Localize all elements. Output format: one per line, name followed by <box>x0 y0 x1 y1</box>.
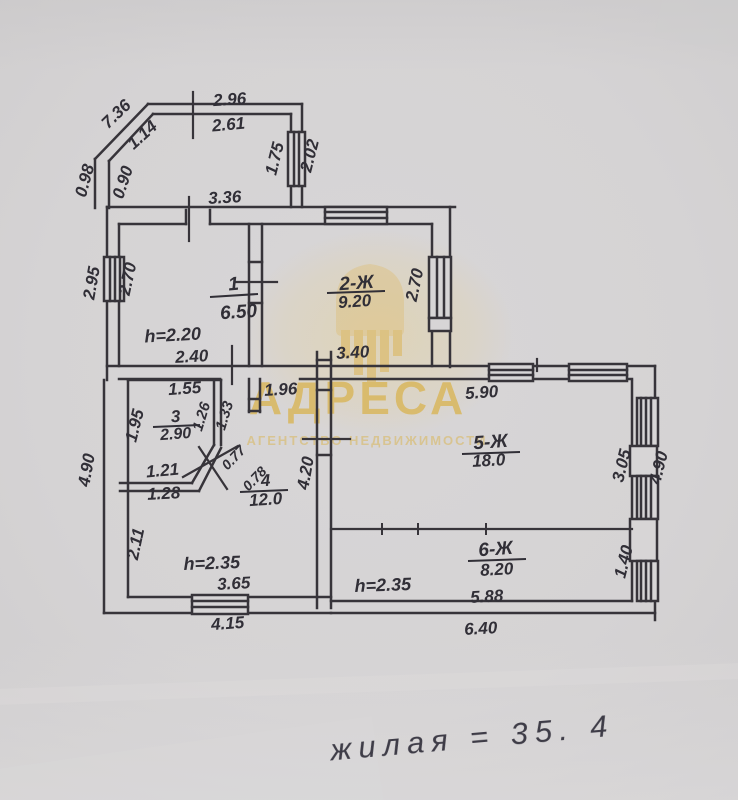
svg-text:5.90: 5.90 <box>464 382 499 403</box>
svg-text:6.40: 6.40 <box>464 618 499 639</box>
svg-text:2.90: 2.90 <box>159 425 192 444</box>
svg-text:9.20: 9.20 <box>337 291 372 312</box>
svg-text:3.40: 3.40 <box>336 342 371 363</box>
svg-text:8.20: 8.20 <box>480 559 515 580</box>
svg-text:1.28: 1.28 <box>147 483 182 504</box>
svg-text:h=2.35: h=2.35 <box>354 574 412 596</box>
svg-text:4: 4 <box>259 471 271 491</box>
svg-text:2.96: 2.96 <box>211 89 247 110</box>
svg-text:6-Ж: 6-Ж <box>478 538 515 561</box>
svg-text:3: 3 <box>170 407 181 427</box>
svg-text:6.50: 6.50 <box>219 301 258 325</box>
svg-text:3.36: 3.36 <box>208 187 243 208</box>
svg-text:4.15: 4.15 <box>209 613 245 634</box>
svg-text:1.96: 1.96 <box>264 379 299 400</box>
svg-text:5.88: 5.88 <box>470 586 505 607</box>
svg-text:3.65: 3.65 <box>217 573 252 594</box>
svg-text:АГЕНТСТВО НЕДВИЖИМОСТИ: АГЕНТСТВО НЕДВИЖИМОСТИ <box>247 433 488 448</box>
svg-text:h=2.35: h=2.35 <box>183 552 241 574</box>
svg-text:1.21: 1.21 <box>145 460 180 482</box>
svg-text:1: 1 <box>227 274 239 296</box>
svg-text:1.55: 1.55 <box>167 378 202 399</box>
svg-text:2.40: 2.40 <box>174 346 210 367</box>
svg-text:2.61: 2.61 <box>210 114 246 136</box>
svg-text:h=2.20: h=2.20 <box>144 324 202 347</box>
